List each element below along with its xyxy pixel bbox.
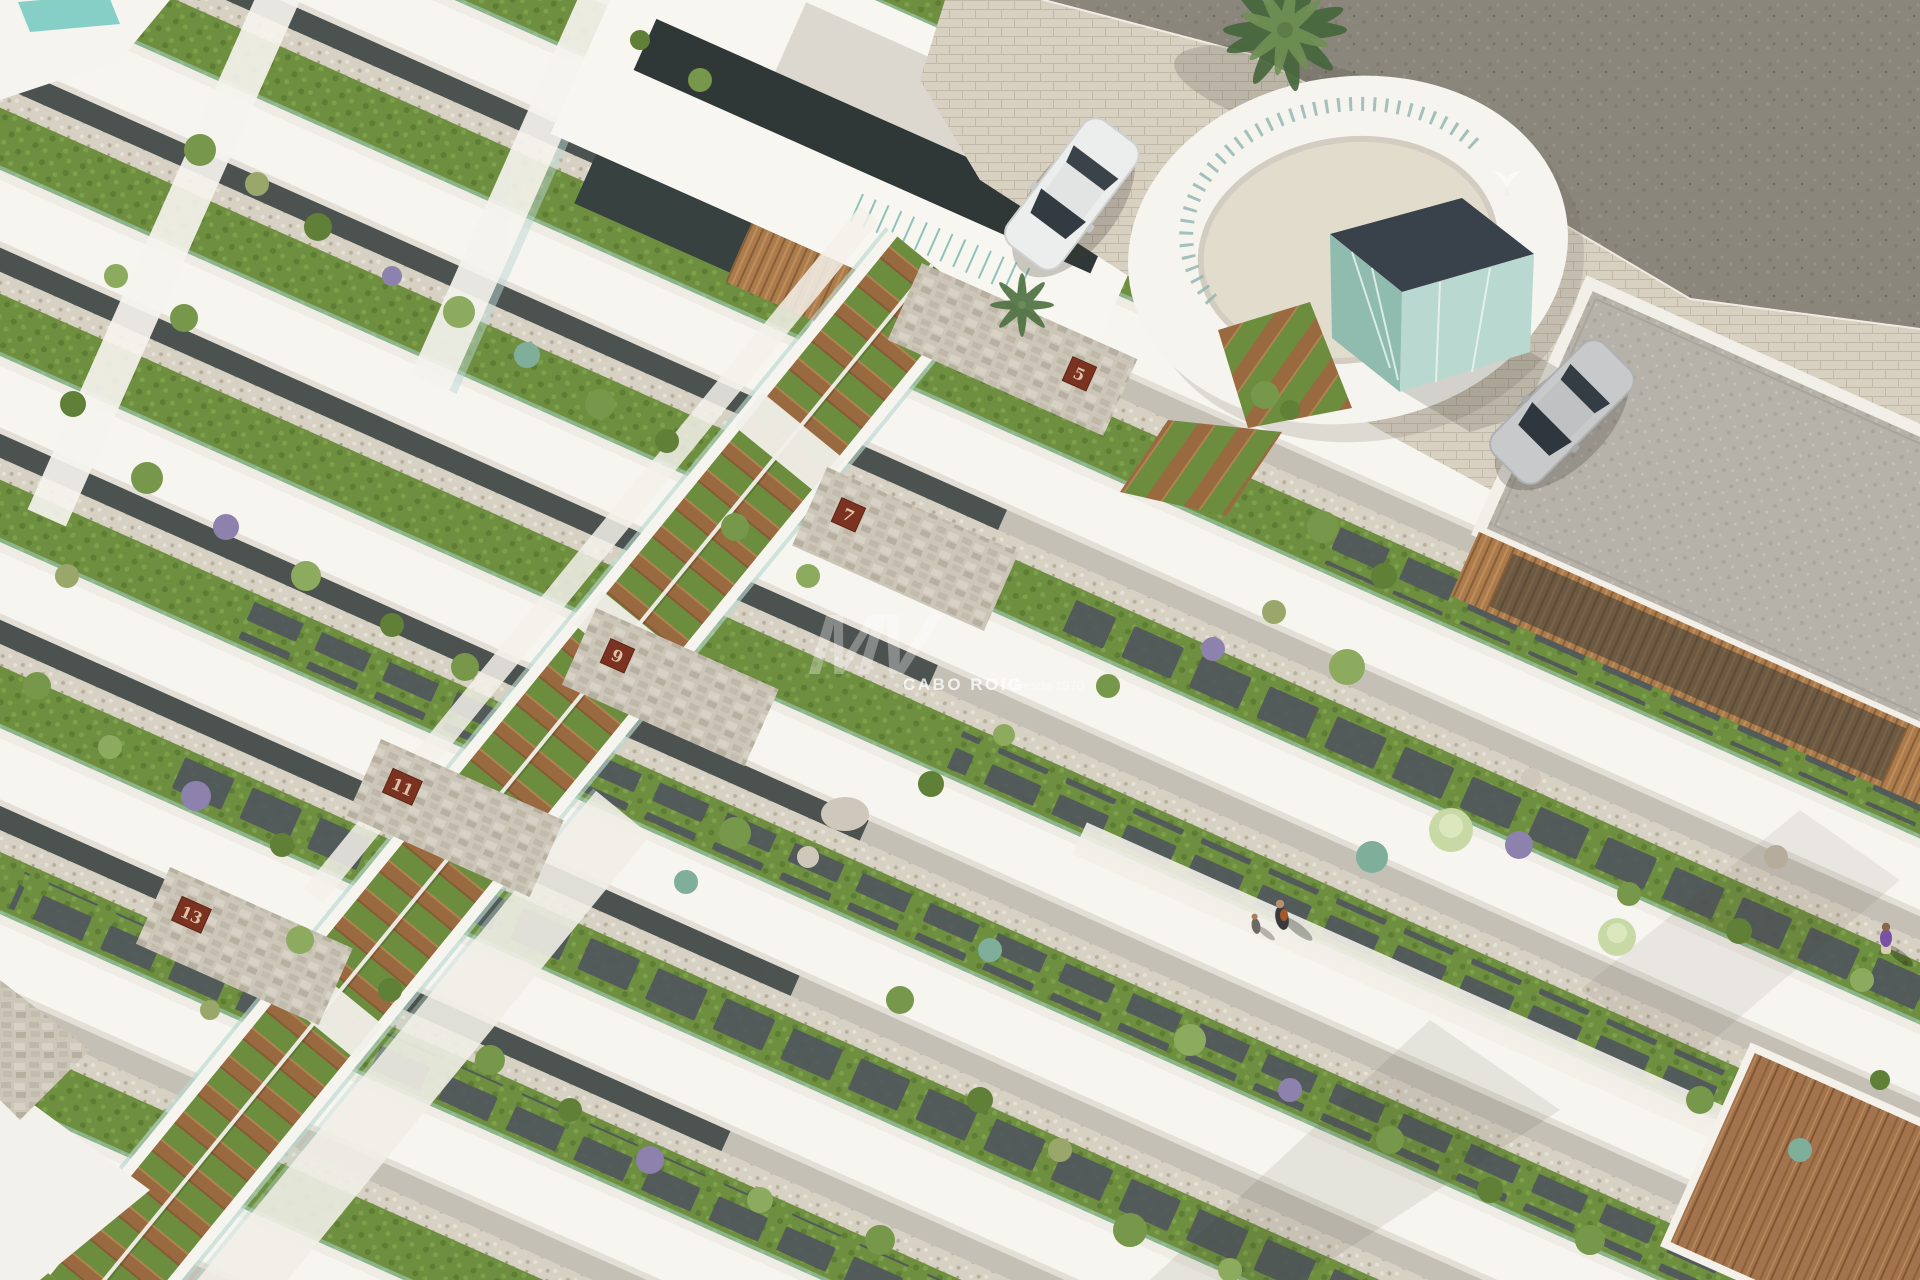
plant xyxy=(378,978,402,1002)
plant xyxy=(1477,1177,1503,1203)
aerial-render: 5 7 9 11 13 xyxy=(0,0,1920,1280)
plant xyxy=(1376,1126,1404,1154)
plant xyxy=(1251,381,1279,409)
plant xyxy=(630,30,650,50)
plant xyxy=(558,1098,582,1122)
rock xyxy=(1764,845,1788,869)
plant xyxy=(1174,1024,1206,1056)
plant xyxy=(291,561,321,591)
plant xyxy=(655,429,679,453)
plant xyxy=(23,672,51,700)
plant xyxy=(1280,400,1300,420)
plant xyxy=(213,514,239,540)
plant xyxy=(1505,831,1533,859)
plant xyxy=(688,68,712,92)
rock xyxy=(797,846,819,868)
plant xyxy=(1113,1213,1147,1247)
small-palm xyxy=(990,273,1054,337)
plant xyxy=(674,870,698,894)
plant xyxy=(918,771,944,797)
plant xyxy=(98,735,122,759)
plant xyxy=(886,986,914,1014)
plant xyxy=(475,1045,505,1075)
round-cactus-top xyxy=(1439,814,1463,838)
plant xyxy=(304,213,332,241)
plant xyxy=(747,1187,773,1213)
plant xyxy=(1870,1070,1890,1090)
plant xyxy=(719,817,751,849)
rock xyxy=(1521,768,1541,788)
plant xyxy=(1788,1138,1812,1162)
plant xyxy=(443,296,475,328)
plant xyxy=(170,304,198,332)
plant xyxy=(55,564,79,588)
plant xyxy=(104,264,128,288)
plant xyxy=(1617,882,1641,906)
plant xyxy=(131,462,163,494)
plant xyxy=(380,613,404,637)
plant xyxy=(1048,1138,1072,1162)
plant xyxy=(286,926,314,954)
plant xyxy=(1262,600,1286,624)
plant xyxy=(270,833,294,857)
plant xyxy=(181,781,211,811)
plant xyxy=(1850,968,1874,992)
plant xyxy=(721,513,749,541)
plant xyxy=(184,134,216,166)
watermark-tagline: Desde 1970 xyxy=(1014,678,1084,693)
plant xyxy=(514,342,540,368)
plant xyxy=(636,1146,664,1174)
plant xyxy=(1329,649,1365,685)
plant xyxy=(978,938,1002,962)
plant xyxy=(200,1000,220,1020)
plant xyxy=(1201,637,1225,661)
plant xyxy=(1726,918,1752,944)
plant xyxy=(585,389,615,419)
plant xyxy=(1096,674,1120,698)
plant xyxy=(1278,1078,1302,1102)
plant xyxy=(967,1087,993,1113)
plant xyxy=(865,1225,895,1255)
plant xyxy=(1686,1086,1714,1114)
plant xyxy=(1307,511,1339,543)
rock xyxy=(821,797,869,831)
plant xyxy=(60,391,86,417)
plant xyxy=(1575,1225,1605,1255)
plant xyxy=(245,172,269,196)
watermark-name: CABO ROIG xyxy=(903,675,1024,694)
plant xyxy=(451,653,479,681)
plant xyxy=(1356,841,1388,873)
plant xyxy=(993,724,1015,746)
plant xyxy=(796,564,820,588)
render-image: 5 7 9 11 13 xyxy=(0,0,1920,1280)
plant xyxy=(382,266,402,286)
round-cactus-top xyxy=(1607,923,1627,943)
plant xyxy=(1371,563,1397,589)
